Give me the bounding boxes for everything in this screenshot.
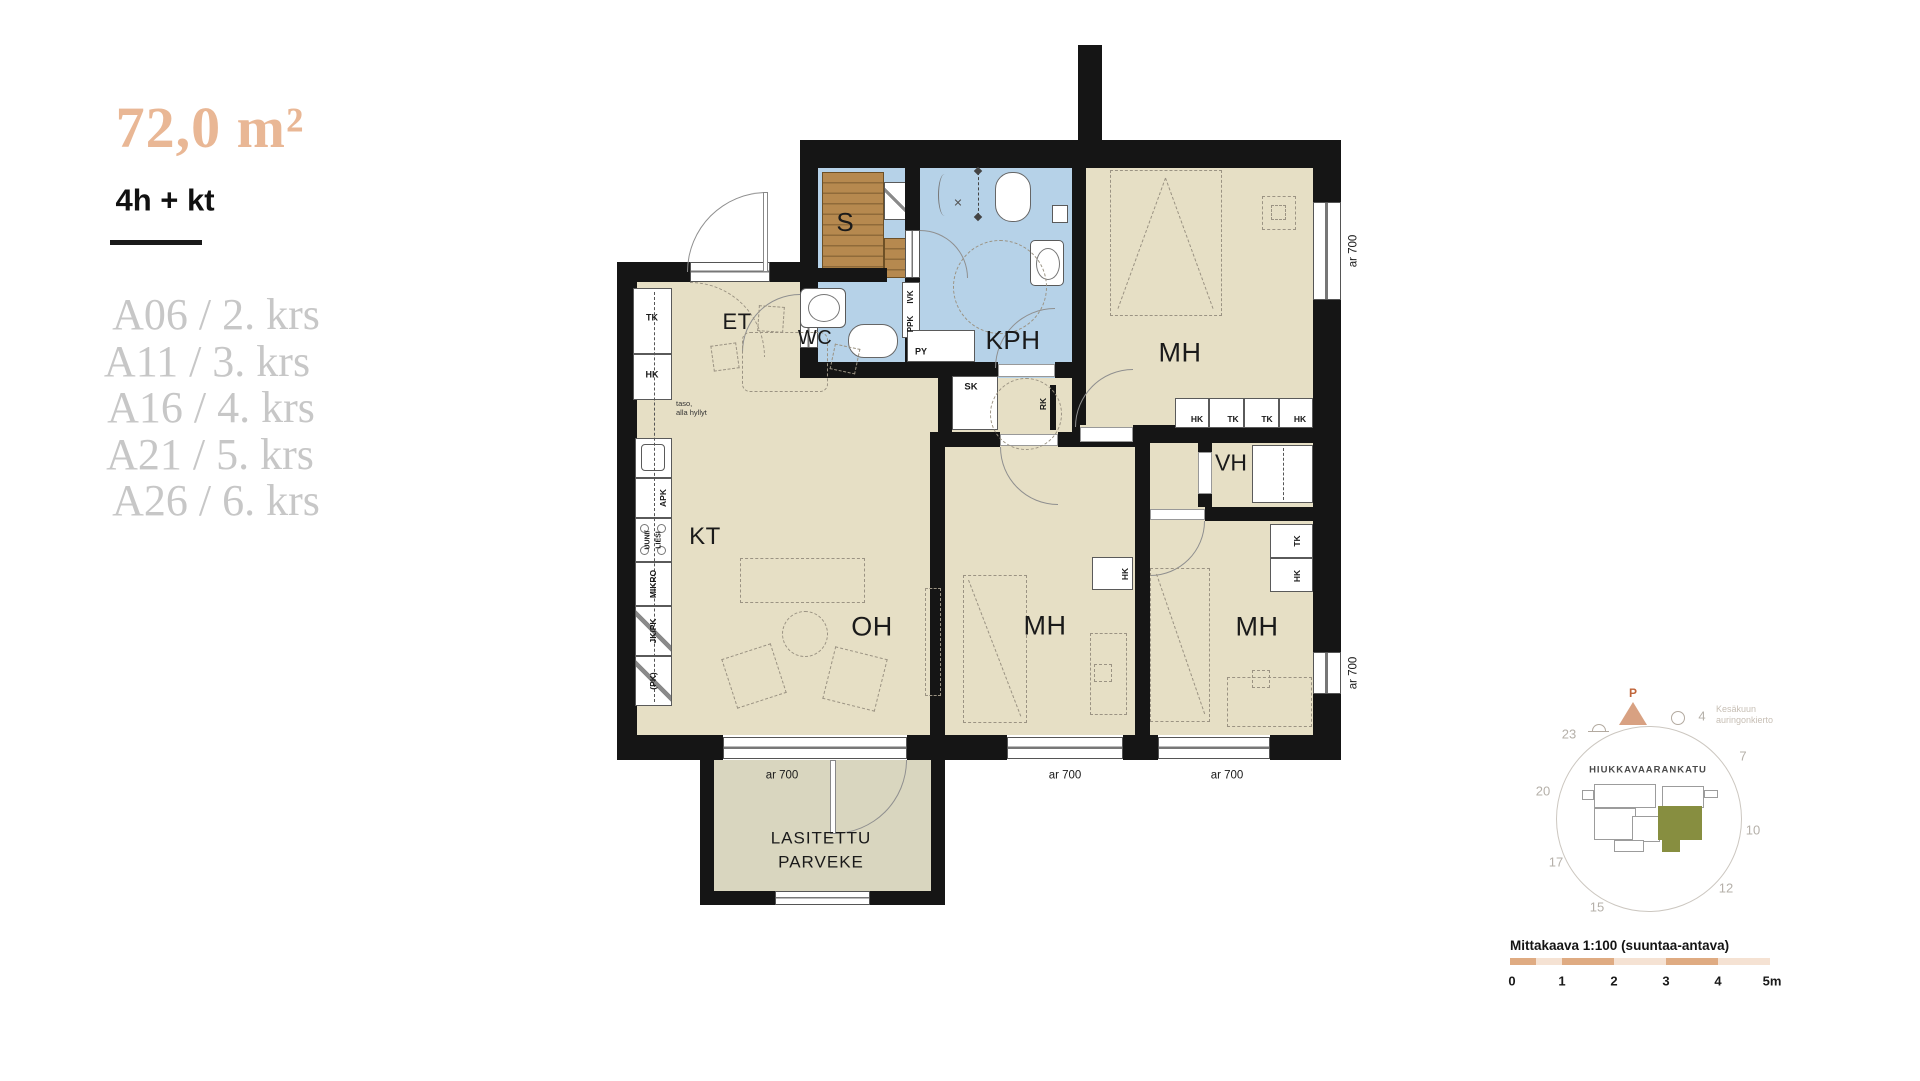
label-liesi: LIESI	[656, 531, 663, 549]
scale-title: Mittakaava 1:100 (suuntaa-antava)	[1510, 938, 1729, 954]
wall	[617, 262, 690, 282]
label-uuni: UUNI/	[645, 530, 652, 549]
label-tk: TK	[1227, 415, 1238, 424]
shower-hose-icon	[938, 174, 951, 216]
window	[1313, 652, 1341, 694]
sun-hour: 10	[1746, 824, 1760, 837]
chair	[710, 342, 739, 371]
label-jkpk: JK/PK	[649, 618, 658, 643]
scale-bar-segment	[1614, 958, 1666, 965]
vh-closet-line	[1283, 448, 1284, 500]
wall	[1313, 140, 1341, 202]
window	[1158, 737, 1270, 759]
wall	[1313, 300, 1341, 652]
room-label-wc: WC	[798, 328, 832, 348]
label-tk: TK	[646, 314, 658, 323]
wall	[1198, 443, 1212, 452]
window-height-note: ar 700	[766, 770, 799, 782]
window	[723, 737, 907, 759]
label-hk: HK	[646, 371, 659, 380]
wall	[905, 168, 920, 230]
apartment-highlight	[1658, 806, 1702, 840]
wall	[1135, 432, 1150, 735]
label-ppk: PPK	[907, 316, 915, 332]
wall	[1135, 507, 1150, 521]
door-opening	[1150, 509, 1205, 520]
scale-tick: 0	[1508, 975, 1515, 988]
room-label-oh: OH	[851, 614, 893, 641]
label-hk: HK	[1121, 568, 1130, 580]
label-rk: RK	[1039, 398, 1048, 410]
sun-icon	[1671, 711, 1685, 725]
balcony-glazing	[775, 891, 870, 905]
wall	[700, 760, 714, 905]
label-apk: APK	[659, 489, 668, 507]
sun-hour: 4	[1698, 710, 1705, 723]
unit-floor-item: A21 / 5. krs	[106, 433, 314, 477]
label-sk: SK	[964, 382, 977, 392]
sun-cycle-note: Kesäkuun	[1716, 704, 1756, 714]
building-outline	[1632, 816, 1660, 842]
unit-floor-item: A11 / 3. krs	[104, 340, 310, 384]
building-outline	[1704, 790, 1718, 798]
tv-stand	[925, 588, 941, 696]
wall	[1055, 362, 1072, 378]
label-mikro: MIKRO	[649, 570, 658, 598]
room-label-kph: KPH	[986, 327, 1041, 353]
building-outline	[1614, 840, 1644, 852]
wall	[1123, 735, 1158, 760]
wall	[800, 140, 1313, 168]
door-opening	[1198, 452, 1212, 494]
wall	[818, 268, 887, 282]
room-label-vh: VH	[1215, 452, 1247, 475]
door-leaf	[830, 760, 836, 834]
sunset-horizon-line	[1588, 731, 1609, 732]
nightstand-inner	[1271, 205, 1286, 220]
label-hk: HK	[1191, 415, 1203, 424]
sun-hour: 15	[1590, 901, 1604, 914]
building-outline	[1594, 808, 1636, 840]
scale-tick: 5m	[1763, 975, 1782, 988]
sun-hour: 17	[1549, 856, 1563, 869]
unit-floor-item: A26 / 6. krs	[112, 479, 320, 523]
floor-drain-icon: ✕	[953, 199, 962, 210]
scale-tick: 3	[1662, 975, 1669, 988]
scale-tick: 4	[1714, 975, 1721, 988]
balcony-label-line1: LASITETTU	[771, 830, 872, 847]
window-height-note: ar 700	[1049, 770, 1082, 782]
scale-bar-segment	[1718, 958, 1770, 965]
label-hk: HK	[1293, 570, 1302, 582]
building-outline	[1582, 790, 1594, 800]
wall	[938, 376, 952, 432]
wall	[700, 891, 775, 905]
shower-rail	[978, 172, 979, 216]
window-height-note: ar 700	[1348, 657, 1360, 690]
label-tk: TK	[1261, 415, 1272, 424]
room-label-mh: MH	[1024, 613, 1067, 640]
window-height-note: ar 700	[1348, 235, 1360, 268]
sun-cycle-note2: auringonkierto	[1716, 715, 1773, 725]
sun-hour: 12	[1719, 882, 1733, 895]
north-label: P	[1629, 687, 1637, 699]
sofa	[740, 558, 865, 603]
wall	[770, 262, 800, 282]
scale-bar-segment	[1510, 958, 1536, 965]
kph-toilet	[995, 172, 1031, 222]
wall	[617, 735, 723, 760]
balcony-label-line2: PARVEKE	[778, 854, 864, 871]
coffee-table	[782, 611, 828, 657]
room-label-mh: MH	[1236, 614, 1279, 641]
turning-radius-circle	[953, 240, 1047, 334]
street-label: HIUKKAVAARANKATU	[1589, 765, 1707, 775]
room-label-sauna: S	[836, 209, 853, 235]
window	[1007, 737, 1123, 759]
sun-hour: 20	[1536, 785, 1550, 798]
room-label-et: ET	[722, 311, 751, 333]
floorplan-page: 72,0 m² 4h + kt A06 / 2. krs A11 / 3. kr…	[0, 0, 1920, 1081]
building-outline	[1662, 786, 1704, 808]
sun-hour: 7	[1739, 750, 1746, 763]
unit-floor-item: A06 / 2. krs	[112, 293, 320, 337]
room-label-mh: MH	[1159, 340, 1202, 367]
scale-tick: 1	[1558, 975, 1565, 988]
sauna-bench	[884, 238, 906, 278]
room-count-label: 4h + kt	[115, 185, 214, 216]
wall	[1072, 168, 1086, 425]
wall	[1205, 507, 1313, 521]
desk-inner	[1094, 664, 1112, 682]
bed	[1110, 170, 1222, 316]
scale-bar-segment	[1666, 958, 1718, 965]
door-leaf	[763, 192, 768, 272]
scale-tick: 2	[1610, 975, 1617, 988]
wall	[907, 735, 1007, 760]
building-outline	[1594, 784, 1656, 808]
wall	[1270, 735, 1341, 760]
label-py: PY	[915, 348, 927, 357]
apartment-highlight-stub	[1662, 840, 1680, 852]
wall	[1198, 494, 1212, 507]
sun-hour: 23	[1562, 728, 1576, 741]
chair	[830, 344, 861, 375]
divider-line	[110, 240, 202, 245]
wall	[870, 891, 945, 905]
scale-bar-segment	[1536, 958, 1562, 965]
sunset-icon	[1592, 724, 1606, 731]
area-title: 72,0 m²	[116, 99, 305, 157]
unit-floor-item: A16 / 4. krs	[107, 386, 315, 430]
door-opening	[1080, 427, 1133, 442]
label-pk: (PK)	[649, 672, 658, 689]
wall	[1078, 45, 1102, 140]
desk-inner	[1252, 670, 1270, 688]
label-ivk: IVK	[907, 290, 915, 303]
room-label-kt: KT	[689, 525, 721, 549]
wc-sink-bowl	[808, 294, 840, 322]
turning-radius-circle	[990, 378, 1062, 450]
window	[1313, 202, 1341, 300]
north-arrow-icon	[1619, 702, 1647, 725]
label-hk: HK	[1294, 415, 1306, 424]
sink-basin	[641, 444, 665, 471]
kph-cabinet	[1052, 205, 1068, 223]
scale-bar-segment	[1562, 958, 1614, 965]
label-tk: TK	[1293, 535, 1302, 546]
window-height-note: ar 700	[1211, 770, 1244, 782]
wall	[930, 432, 1000, 447]
sauna-door	[905, 230, 920, 278]
chair	[757, 305, 785, 333]
label-taso2: alla hyllyt	[676, 409, 707, 418]
wall	[931, 760, 945, 905]
door-arc	[687, 192, 767, 272]
